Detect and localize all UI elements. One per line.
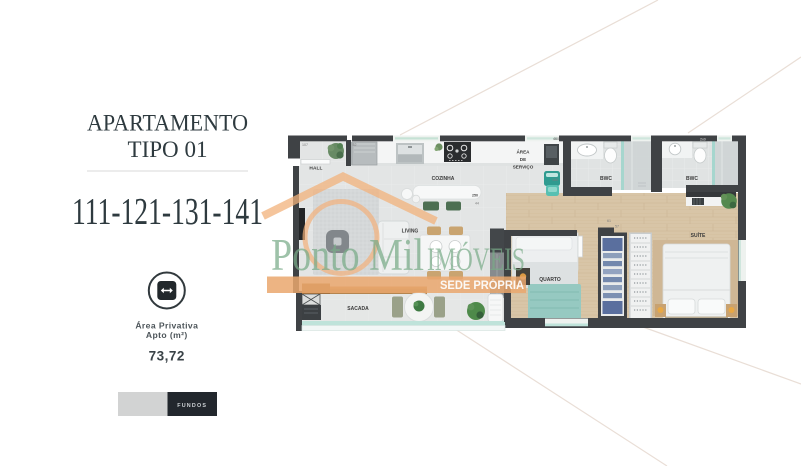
svg-text:44: 44 [475,202,479,206]
svg-text:QUARTO: QUARTO [539,277,561,283]
svg-text:107: 107 [302,143,308,147]
svg-text:SEDE PRÓPRIA: SEDE PRÓPRIA [440,279,524,292]
svg-text:SERVIÇO: SERVIÇO [513,165,534,170]
svg-text:APARTAMENTO: APARTAMENTO [87,111,248,136]
svg-text:61: 61 [607,219,611,223]
svg-text:BWC: BWC [600,176,612,182]
svg-text:Ponto Mil: Ponto Mil [271,230,424,280]
svg-text:52: 52 [353,143,357,147]
svg-text:ÁREA: ÁREA [516,149,530,155]
svg-text:HALL: HALL [309,166,322,172]
svg-text:57: 57 [615,225,619,229]
svg-text:IMÓVEIS: IMÓVEIS [427,240,525,278]
svg-text:DE: DE [520,157,526,162]
svg-text:FUNDOS: FUNDOS [177,403,207,409]
svg-text:Apto (m²): Apto (m²) [146,330,188,340]
svg-text:SACADA: SACADA [347,306,369,312]
svg-text:250: 250 [472,194,478,198]
svg-text:BWC: BWC [686,176,698,182]
svg-text:111-121-131-141: 111-121-131-141 [72,191,263,233]
svg-text:73,72: 73,72 [149,349,185,364]
svg-text:Área Privativa: Área Privativa [135,321,198,331]
svg-text:COZINHA: COZINHA [432,176,455,182]
svg-text:TIPO 01: TIPO 01 [128,137,208,162]
svg-text:460: 460 [553,137,559,141]
svg-text:SUÍTE: SUÍTE [691,231,706,239]
svg-text:2x0: 2x0 [700,138,706,142]
svg-text:180: 180 [552,178,558,182]
